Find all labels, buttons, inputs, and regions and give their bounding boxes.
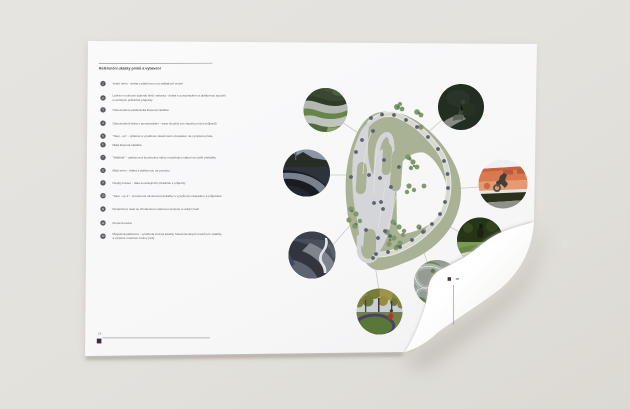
svg-text:a výrazné směrové změny jízdy: a výrazné směrové změny jízdy bbox=[113, 236, 156, 240]
svg-text:Vodní terén - dráha s platform: Vodní terén - dráha s platformou na zákl… bbox=[113, 82, 184, 86]
svg-text:Rozjezdový úsek se zbudovanou: Rozjezdový úsek se zbudovanou sadovou úp… bbox=[113, 207, 200, 211]
svg-text:Malý terén - dráha s platformo: Malý terén - dráha s platformou na povrc… bbox=[113, 169, 171, 173]
svg-text:Obousměrná parabolická klopená: Obousměrná parabolická klopená zatáčka bbox=[113, 108, 169, 112]
svg-text:"Wallride" - platforma a konst: "Wallride" - platforma a konstrukce stěn… bbox=[113, 156, 217, 160]
svg-text:"Step - up" - výškové a vyváže: "Step - up" - výškové a vyvážené návazno… bbox=[113, 134, 214, 138]
svg-text:"Step - up 2" - prostorová náv: "Step - up 2" - prostorová návaznost pře… bbox=[113, 194, 223, 198]
svg-text:15: 15 bbox=[98, 331, 102, 335]
svg-text:Dvojitý boulec - řada souvisej: Dvojitý boulec - řada souvisejících přek… bbox=[113, 181, 186, 185]
svg-text:umožňující průběžné přejezdy: umožňující průběžné přejezdy bbox=[113, 98, 154, 102]
svg-text:Klopená louka: Klopená louka bbox=[113, 221, 132, 225]
svg-text:Referenční ukázky prvků a vyba: Referenční ukázky prvků a vybavení bbox=[99, 67, 162, 71]
svg-text:Malá klopená zatáčka: Malá klopená zatáčka bbox=[113, 143, 142, 147]
svg-text:Obousměrná lávka s pumptrackem: Obousměrná lávka s pumptrackem - trasy s… bbox=[113, 121, 218, 125]
